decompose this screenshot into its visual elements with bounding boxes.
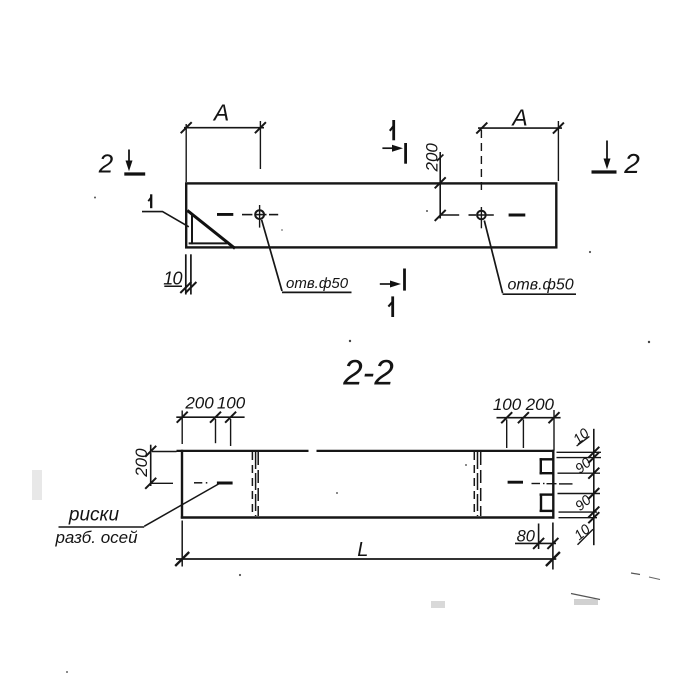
svg-text:риски: риски xyxy=(68,505,120,526)
svg-text:L: L xyxy=(357,539,368,561)
svg-text:A: A xyxy=(510,105,527,131)
svg-text:2-2: 2-2 xyxy=(342,354,394,393)
svg-text:10: 10 xyxy=(163,269,182,289)
svg-text:разб. осей: разб. осей xyxy=(54,528,138,547)
svg-text:100: 100 xyxy=(217,394,246,413)
svg-text:200: 200 xyxy=(525,395,555,414)
svg-text:A: A xyxy=(212,100,229,126)
svg-text:90: 90 xyxy=(572,491,594,513)
svg-text:отв.ф50: отв.ф50 xyxy=(286,275,349,292)
svg-text:отв.ф50: отв.ф50 xyxy=(508,277,574,294)
svg-text:200: 200 xyxy=(184,394,214,413)
svg-text:10: 10 xyxy=(570,425,592,447)
svg-text:2: 2 xyxy=(98,149,114,179)
svg-text:200: 200 xyxy=(132,448,151,478)
svg-text:200: 200 xyxy=(422,143,441,173)
svg-text:80: 80 xyxy=(517,528,536,546)
svg-text:2: 2 xyxy=(623,148,640,179)
svg-text:100: 100 xyxy=(493,395,522,414)
